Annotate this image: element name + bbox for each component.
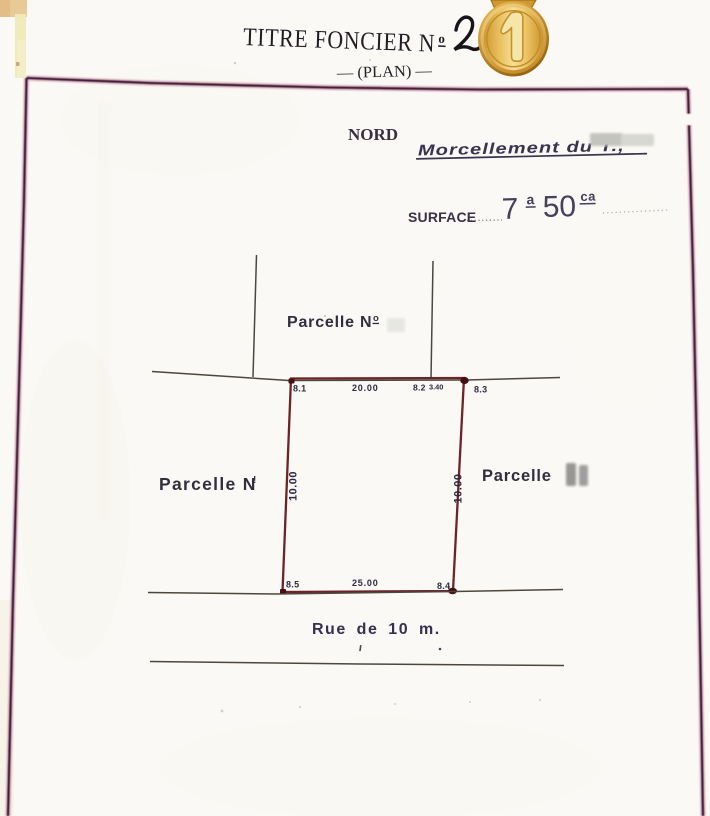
svg-text:8.2: 8.2 [413, 383, 426, 393]
svg-text:Parcelle: Parcelle [482, 467, 552, 485]
svg-text:8.1: 8.1 [293, 384, 306, 394]
svg-text:20.00: 20.00 [352, 383, 379, 393]
svg-text:SURFACE: SURFACE [408, 209, 476, 225]
svg-text:8.4: 8.4 [437, 581, 450, 591]
svg-text:Parcelle N: Parcelle N [287, 314, 372, 331]
svg-text:a: a [526, 191, 534, 207]
svg-text:ca: ca [580, 189, 596, 204]
svg-text:NORD: NORD [348, 125, 398, 144]
svg-text:!: ! [253, 475, 256, 486]
svg-text:10.00: 10.00 [288, 471, 300, 501]
svg-text:10.00: 10.00 [453, 473, 465, 503]
svg-text:o: o [373, 313, 379, 324]
svg-text:8.5: 8.5 [286, 580, 299, 590]
svg-text:25.00: 25.00 [352, 578, 379, 588]
svg-text:Rue de 10 m.: Rue de 10 m. [312, 621, 441, 638]
svg-text:Parcelle N: Parcelle N [159, 474, 257, 494]
svg-text:— (PLAN) —: — (PLAN) — [336, 62, 433, 82]
svg-text:8.3: 8.3 [474, 385, 487, 395]
svg-text:7: 7 [501, 193, 519, 226]
svg-text:3.40: 3.40 [429, 383, 443, 392]
svg-text:50: 50 [542, 190, 576, 224]
svg-text:o: o [438, 31, 445, 46]
